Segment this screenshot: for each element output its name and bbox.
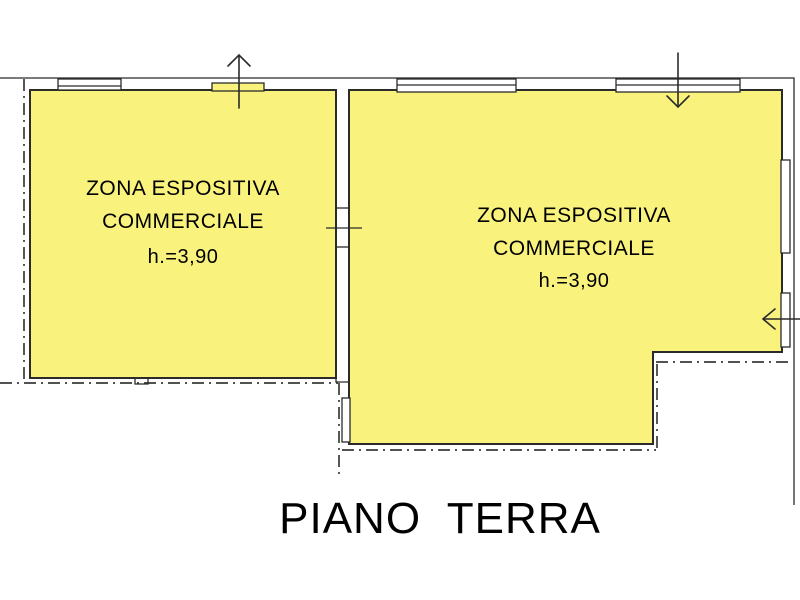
floor-plan: ZONA ESPOSITIVA COMMERCIALE h.=3,90 ZONA… xyxy=(0,0,800,600)
window-icon xyxy=(397,79,516,92)
right-room-height-label: h.=3,90 xyxy=(389,270,759,292)
left-room-name-line1: ZONA ESPOSITIVA xyxy=(30,178,336,200)
door-opening-icon xyxy=(342,398,350,442)
window-icon xyxy=(58,79,121,90)
left-room-name-line2: COMMERCIALE xyxy=(30,211,336,233)
dividing-wall-step xyxy=(336,378,349,382)
left-room-label: ZONA ESPOSITIVA COMMERCIALE h.=3,90 xyxy=(30,178,336,268)
plan-title: PIANO TERRA xyxy=(240,494,640,544)
left-room-height-label: h.=3,90 xyxy=(30,246,336,268)
window-icon xyxy=(781,293,790,347)
right-room-name-line1: ZONA ESPOSITIVA xyxy=(389,205,759,227)
right-room-name-line2: COMMERCIALE xyxy=(389,238,759,260)
right-room-label: ZONA ESPOSITIVA COMMERCIALE h.=3,90 xyxy=(389,205,759,292)
door-opening-icon xyxy=(212,83,264,91)
window-icon xyxy=(781,160,790,253)
